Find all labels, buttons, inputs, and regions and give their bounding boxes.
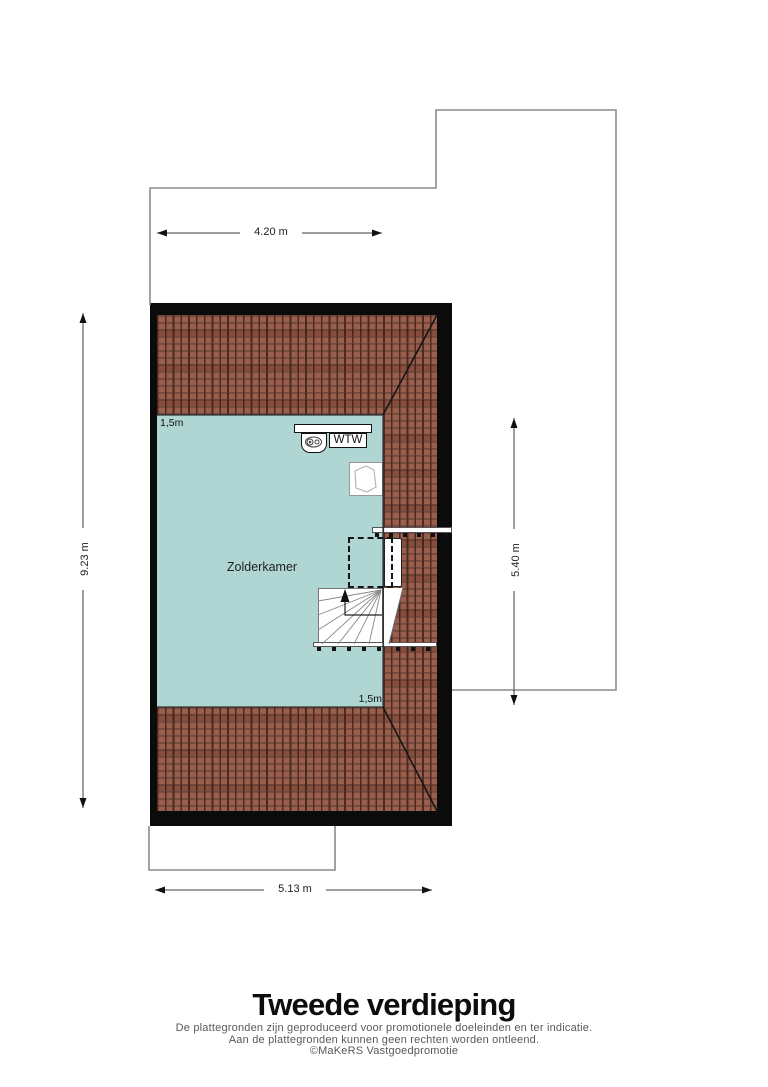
dimension-right-label: 5.40 m <box>510 529 522 591</box>
floorplan-page: WTW <box>0 0 768 1087</box>
page-title: Tweede verdieping <box>0 987 768 1023</box>
dimension-top-label: 4.20 m <box>240 226 302 238</box>
footer-disclaimer: De plattegronden zijn geproduceerd voor … <box>0 1023 768 1058</box>
stair-treads <box>318 588 403 644</box>
copyright-line: ©MaKeRS Vastgoedpromotie <box>0 1046 768 1058</box>
height-marker-bottom: 1,5m <box>344 693 382 705</box>
dimension-bottom-label: 5.13 m <box>264 883 326 895</box>
wtw-motor-icon <box>306 437 322 447</box>
room-label: Zolderkamer <box>212 560 312 574</box>
skylight-dashed-outline <box>348 537 393 588</box>
dimension-left-label: 9.23 m <box>79 528 91 590</box>
ventilation-glyph <box>355 466 376 492</box>
disclaimer-line-1: De plattegronden zijn geproduceerd voor … <box>0 1023 768 1035</box>
height-marker-top: 1,5m <box>160 417 183 429</box>
